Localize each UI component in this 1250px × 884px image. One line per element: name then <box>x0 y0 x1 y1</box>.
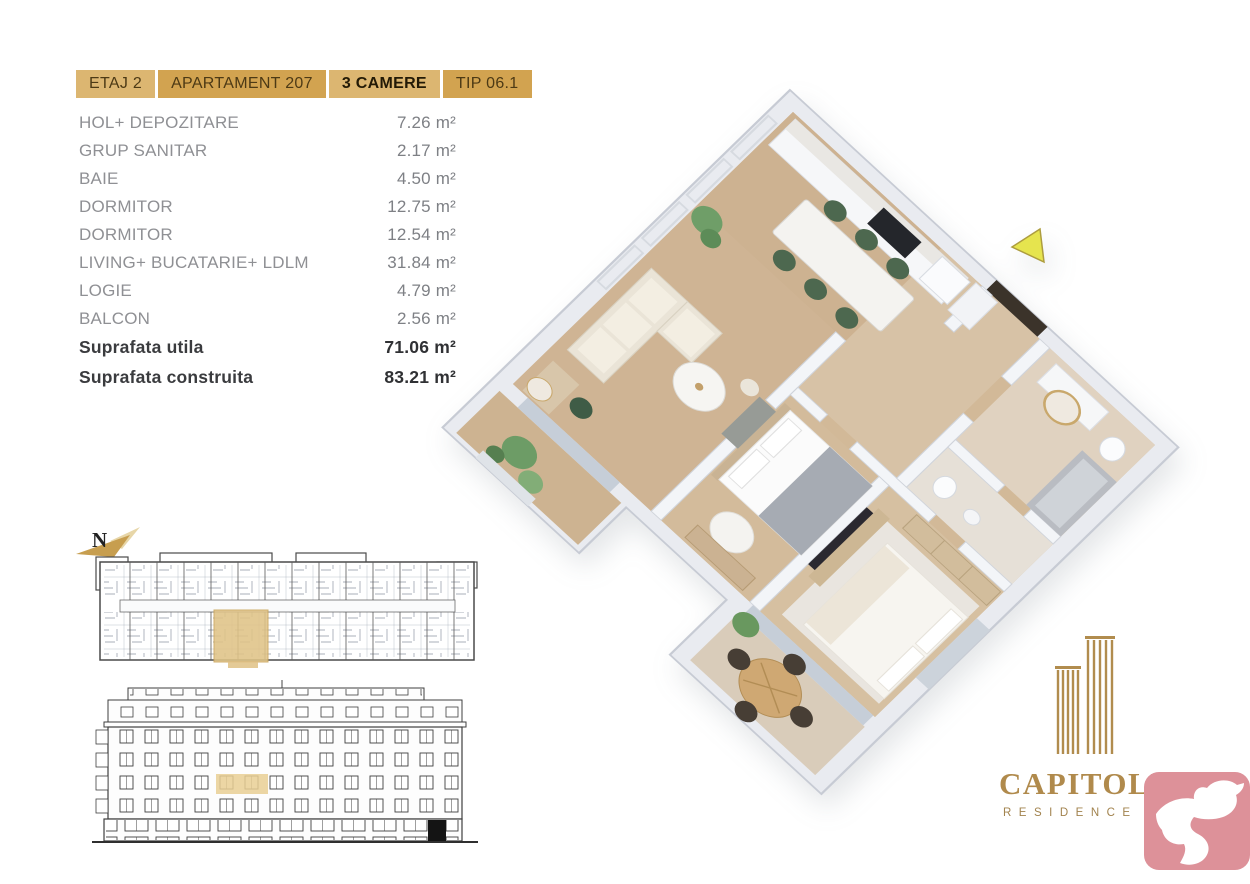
highlighted-unit-elevation <box>216 774 268 794</box>
cornice <box>104 722 466 727</box>
orientation-triangle-icon <box>1012 229 1044 262</box>
plan-sheet-page: ETAJ 2 APARTAMENT 207 3 CAMERE TIP 06.1 … <box>0 0 1250 884</box>
highlighted-unit <box>214 610 268 662</box>
site-plan: N <box>70 505 482 677</box>
balcony-stack <box>96 730 108 813</box>
building-elevation <box>90 680 482 856</box>
entrance-elevation <box>428 820 446 841</box>
brand-subtitle: RESIDENCE <box>1003 807 1138 819</box>
building-towers-icon <box>1052 636 1118 760</box>
north-label: N <box>92 528 107 552</box>
dove-icon <box>1144 772 1250 870</box>
corridor <box>120 600 455 612</box>
